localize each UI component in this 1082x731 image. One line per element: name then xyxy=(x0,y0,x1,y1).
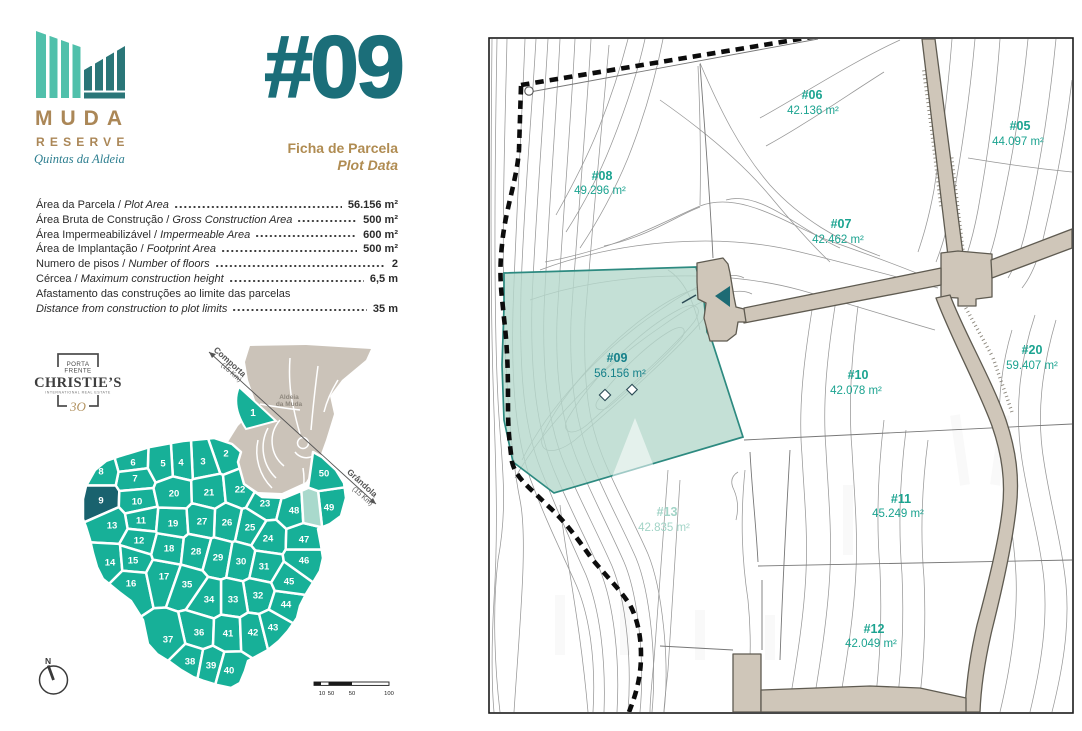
svg-text:5: 5 xyxy=(160,459,166,470)
svg-text:27: 27 xyxy=(197,517,208,528)
svg-text:28: 28 xyxy=(191,547,202,558)
svg-text:Aldeia: Aldeia xyxy=(279,394,299,401)
svg-text:46: 46 xyxy=(299,556,310,567)
svg-text:39: 39 xyxy=(206,661,217,672)
svg-text:#09: #09 xyxy=(607,351,628,365)
svg-text:#13: #13 xyxy=(657,505,678,519)
svg-text:22: 22 xyxy=(235,485,246,496)
svg-text:48: 48 xyxy=(289,506,300,517)
svg-text:15: 15 xyxy=(128,556,139,567)
svg-text:#07: #07 xyxy=(831,217,852,231)
svg-text:49: 49 xyxy=(324,503,335,514)
svg-text:8: 8 xyxy=(98,467,103,478)
svg-text:59.407 m²: 59.407 m² xyxy=(1006,360,1058,372)
svg-text:#12: #12 xyxy=(864,622,885,636)
svg-text:2: 2 xyxy=(223,449,228,460)
svg-text:38: 38 xyxy=(185,657,196,668)
svg-text:35: 35 xyxy=(182,580,193,591)
svg-text:23: 23 xyxy=(260,499,271,510)
svg-text:3: 3 xyxy=(200,457,205,468)
svg-text:42.835 m²: 42.835 m² xyxy=(638,522,690,534)
svg-text:31: 31 xyxy=(259,562,270,573)
svg-text:#06: #06 xyxy=(802,88,823,102)
svg-text:24: 24 xyxy=(263,534,274,545)
svg-text:19: 19 xyxy=(168,519,179,530)
svg-text:25: 25 xyxy=(245,523,256,534)
svg-text:42.078 m²: 42.078 m² xyxy=(830,385,882,397)
svg-text:10: 10 xyxy=(319,691,325,697)
svg-text:36: 36 xyxy=(194,628,205,639)
svg-text:18: 18 xyxy=(164,544,175,555)
svg-text:50: 50 xyxy=(319,469,330,480)
svg-text:11: 11 xyxy=(136,516,147,527)
svg-text:12: 12 xyxy=(134,536,145,547)
svg-text:#08: #08 xyxy=(592,169,613,183)
svg-text:26: 26 xyxy=(222,518,233,529)
svg-text:43: 43 xyxy=(268,623,279,634)
svg-text:45.249 m²: 45.249 m² xyxy=(872,508,924,520)
svg-text:32: 32 xyxy=(253,591,264,602)
svg-text:#20: #20 xyxy=(1022,343,1043,357)
svg-text:13: 13 xyxy=(107,521,118,532)
svg-text:34: 34 xyxy=(204,595,215,606)
svg-text:14: 14 xyxy=(105,558,116,569)
svg-text:56.156 m²: 56.156 m² xyxy=(594,368,646,380)
svg-text:9: 9 xyxy=(98,496,103,507)
svg-text:6: 6 xyxy=(130,458,135,469)
svg-text:50: 50 xyxy=(328,691,334,697)
svg-text:7: 7 xyxy=(132,474,137,485)
svg-text:37: 37 xyxy=(163,635,174,646)
svg-text:49.296 m²: 49.296 m² xyxy=(574,185,626,197)
svg-text:4: 4 xyxy=(178,458,184,469)
svg-text:42.136 m²: 42.136 m² xyxy=(787,105,839,117)
svg-text:21: 21 xyxy=(204,488,215,499)
svg-text:17: 17 xyxy=(159,572,170,583)
svg-text:50: 50 xyxy=(349,691,355,697)
svg-text:41: 41 xyxy=(223,629,234,640)
svg-text:#11: #11 xyxy=(891,492,911,506)
svg-text:45: 45 xyxy=(284,577,295,588)
svg-text:16: 16 xyxy=(126,579,137,590)
svg-text:#05: #05 xyxy=(1010,119,1031,133)
svg-text:29: 29 xyxy=(213,553,224,564)
svg-text:1: 1 xyxy=(250,408,256,419)
svg-text:47: 47 xyxy=(299,535,310,546)
svg-text:N: N xyxy=(45,656,51,666)
svg-text:100: 100 xyxy=(384,691,394,697)
svg-text:30: 30 xyxy=(236,557,247,568)
svg-text:44: 44 xyxy=(281,600,292,611)
svg-text:20: 20 xyxy=(169,489,180,500)
svg-text:42.462 m²: 42.462 m² xyxy=(812,234,864,246)
svg-text:33: 33 xyxy=(228,595,239,606)
svg-text:da Muda: da Muda xyxy=(276,401,303,408)
svg-text:10: 10 xyxy=(132,497,143,508)
svg-text:40: 40 xyxy=(224,666,235,677)
svg-text:#10: #10 xyxy=(848,368,869,382)
svg-text:42: 42 xyxy=(248,628,259,639)
svg-text:44.097 m²: 44.097 m² xyxy=(992,136,1044,148)
svg-text:42.049 m²: 42.049 m² xyxy=(845,638,897,650)
